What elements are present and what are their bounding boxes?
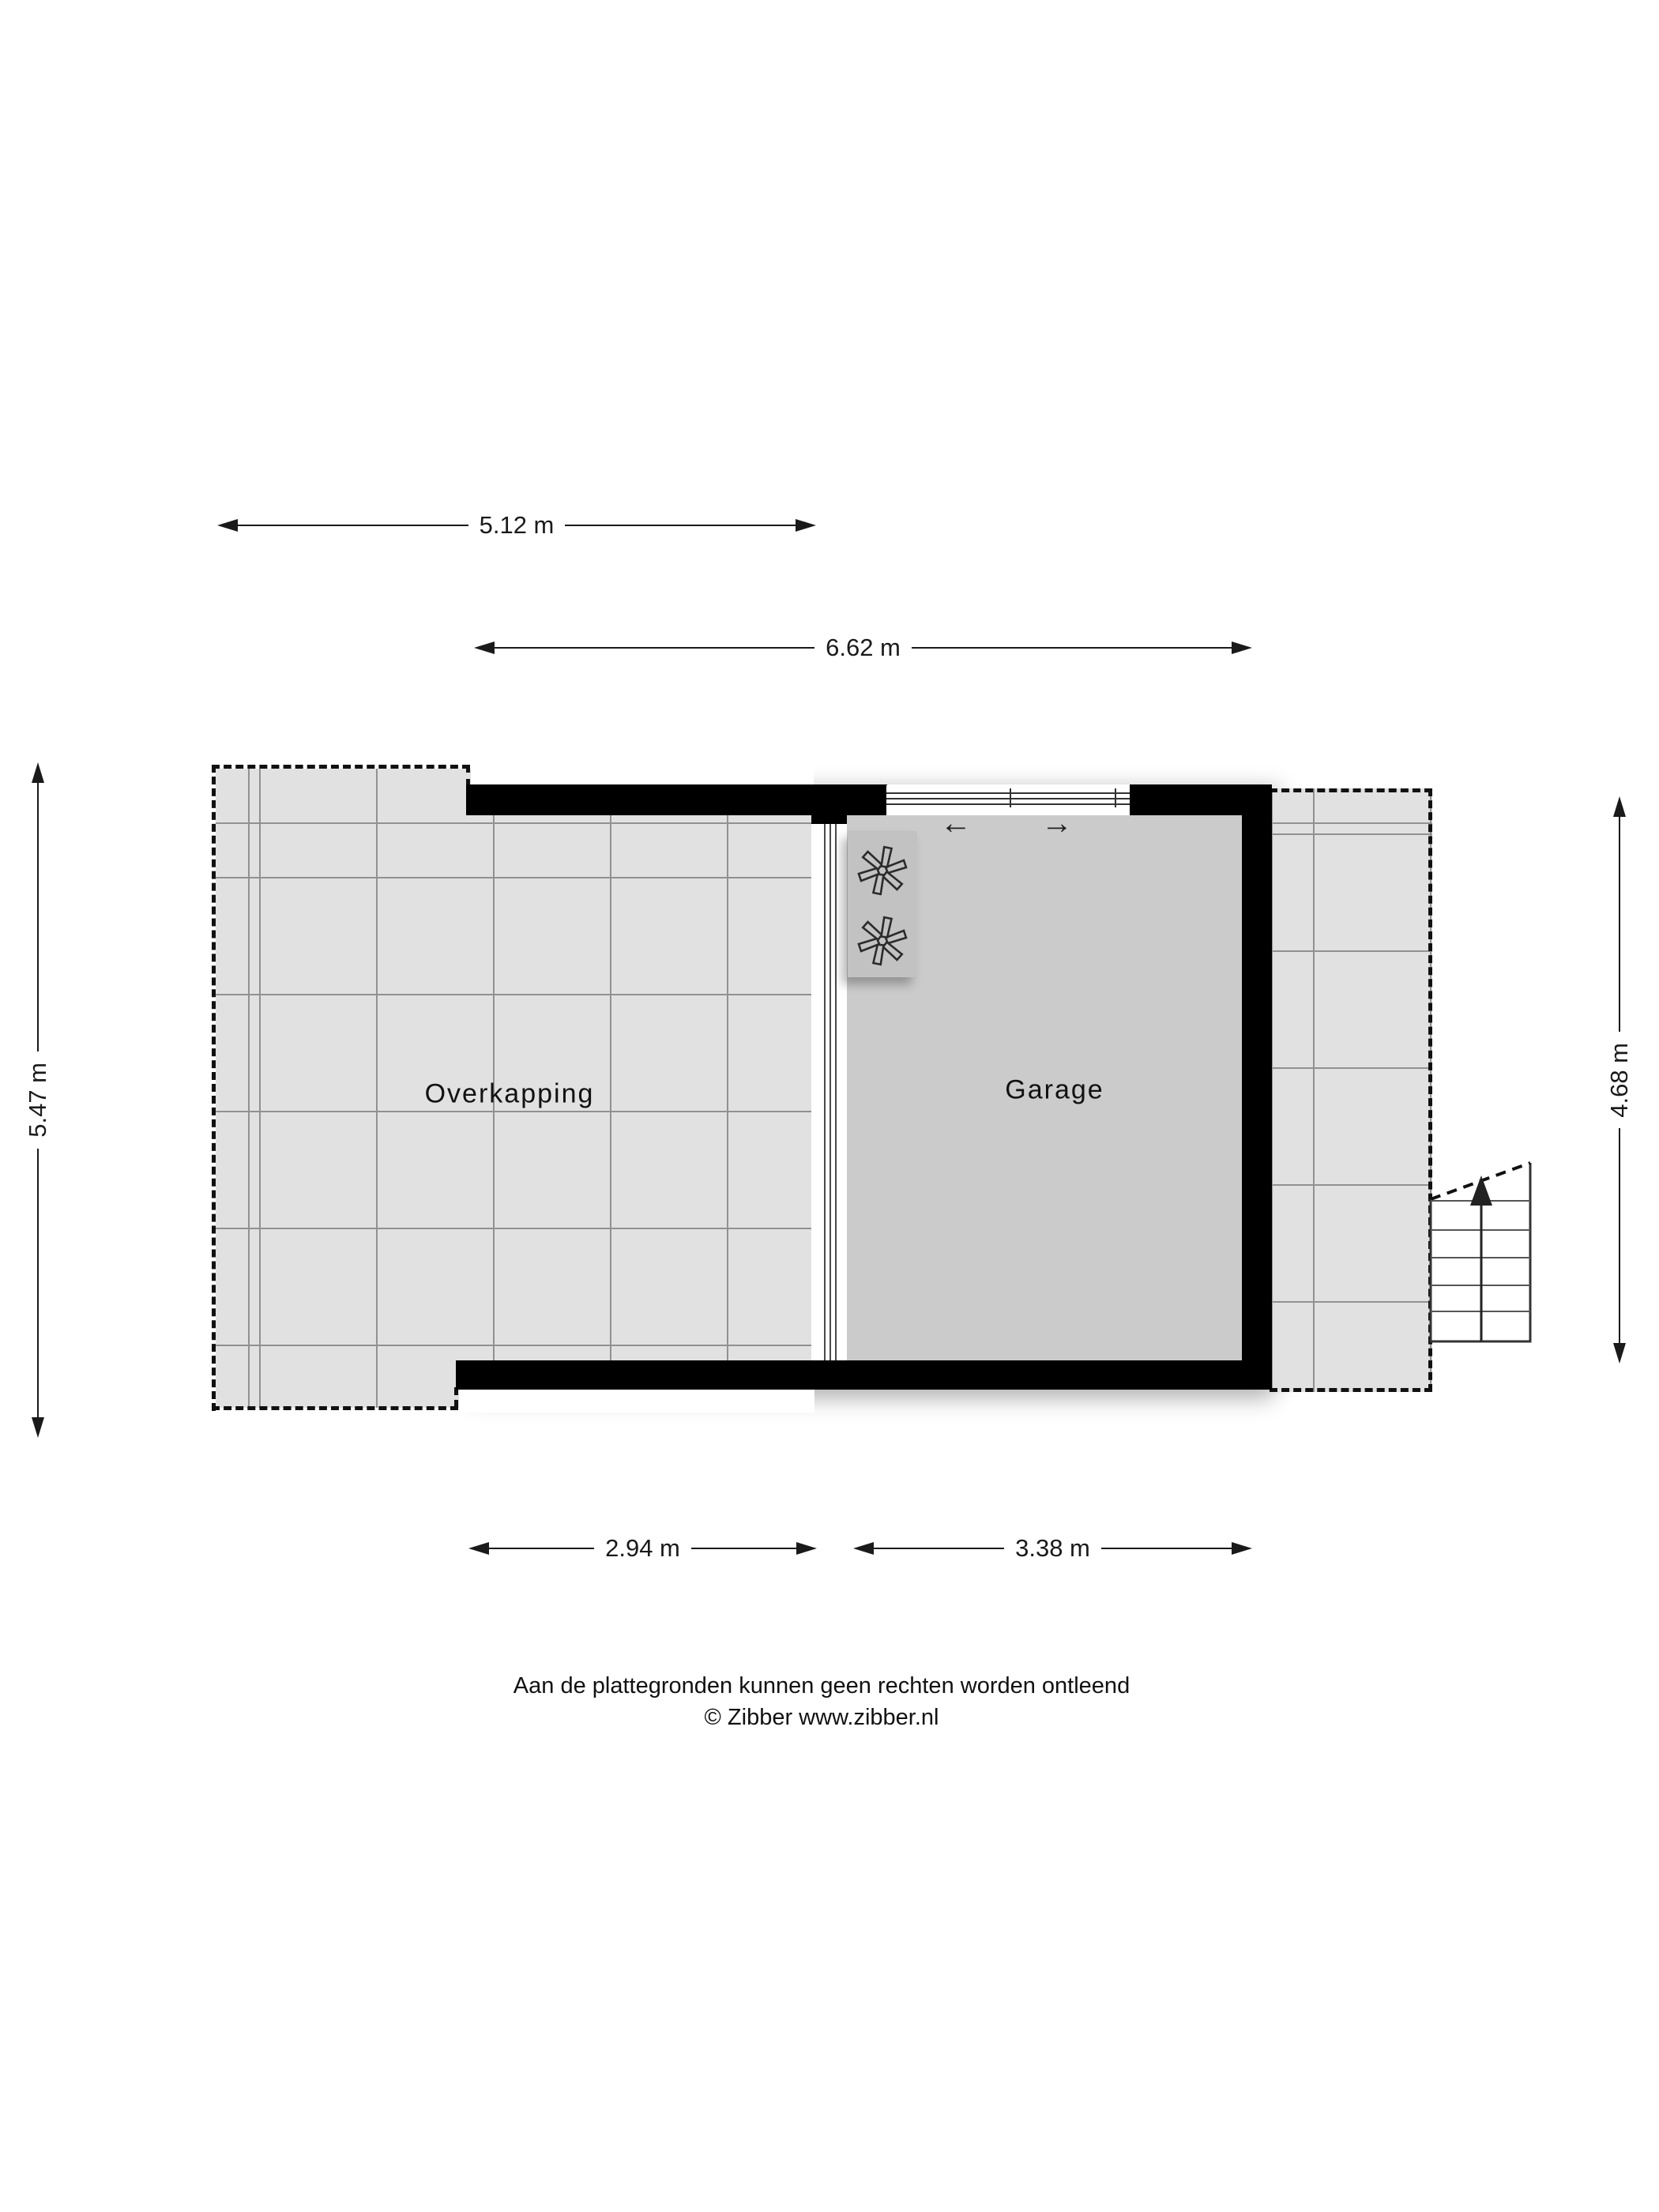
arrowhead-down-icon [1613,1343,1626,1364]
garage-door [886,785,1130,815]
overkapping-dashed-bottom-drop [454,1387,458,1408]
overkapping-dashed-top-edge [212,765,470,769]
arrowhead-right-icon [1232,1542,1252,1555]
dimension-left: 5.47 m [25,762,51,1438]
arrowhead-left-icon [217,519,238,532]
room-label-garage: Garage [1005,1075,1104,1106]
right-wall [1242,784,1272,1390]
installation-unit [848,831,917,977]
mask-bottom [459,1389,814,1413]
dimension-label: 3.38 m [1015,1534,1090,1563]
arrowhead-left-icon [468,1542,489,1555]
arrowhead-up-icon [32,762,44,783]
right-terrace-floor [1270,788,1432,1392]
overkapping-dashed-bottom-edge [212,1406,458,1410]
dimension-label: 4.68 m [1605,1043,1634,1118]
arrowhead-left-icon [853,1542,874,1555]
dimension-label: 6.62 m [826,634,901,662]
staircase [1428,1155,1534,1345]
dimension-top-inner: 6.62 m [474,635,1252,660]
footer-copyright: © Zibber www.zibber.nl [0,1705,1643,1731]
door-arrow-right-icon: → [1041,807,1073,839]
partition-wall-stub [811,784,847,824]
arrowhead-down-icon [32,1417,44,1438]
overkapping-dashed-left-edge [212,765,216,1411]
dimension-label: 5.47 m [24,1063,52,1138]
arrowhead-left-icon [474,641,495,654]
bottom-wall [456,1360,1272,1390]
arrowhead-right-icon [796,1542,817,1555]
fan-icon [856,845,908,897]
door-arrow-left-icon: ← [940,807,972,839]
arrowhead-right-icon [1232,641,1252,654]
dimension-label: 2.94 m [605,1534,680,1563]
arrowhead-up-icon [1613,796,1626,817]
dimension-right: 4.68 m [1607,796,1632,1364]
fan-icon [856,915,908,967]
partition-wall [811,815,847,1360]
floorplan-canvas: ← → [0,0,1659,2212]
dimension-label: 5.12 m [480,511,555,540]
footer-disclaimer: Aan de plattegronden kunnen geen rechten… [0,1673,1643,1699]
arrowhead-right-icon [796,519,816,532]
dimension-top-outer: 5.12 m [217,513,816,538]
room-label-overkapping: Overkapping [425,1079,595,1110]
dimension-bottom-left: 2.94 m [468,1536,817,1561]
mask-top [471,762,814,785]
overkapping-dashed-top-drop [466,765,470,787]
dimension-bottom-right: 3.38 m [853,1536,1252,1561]
